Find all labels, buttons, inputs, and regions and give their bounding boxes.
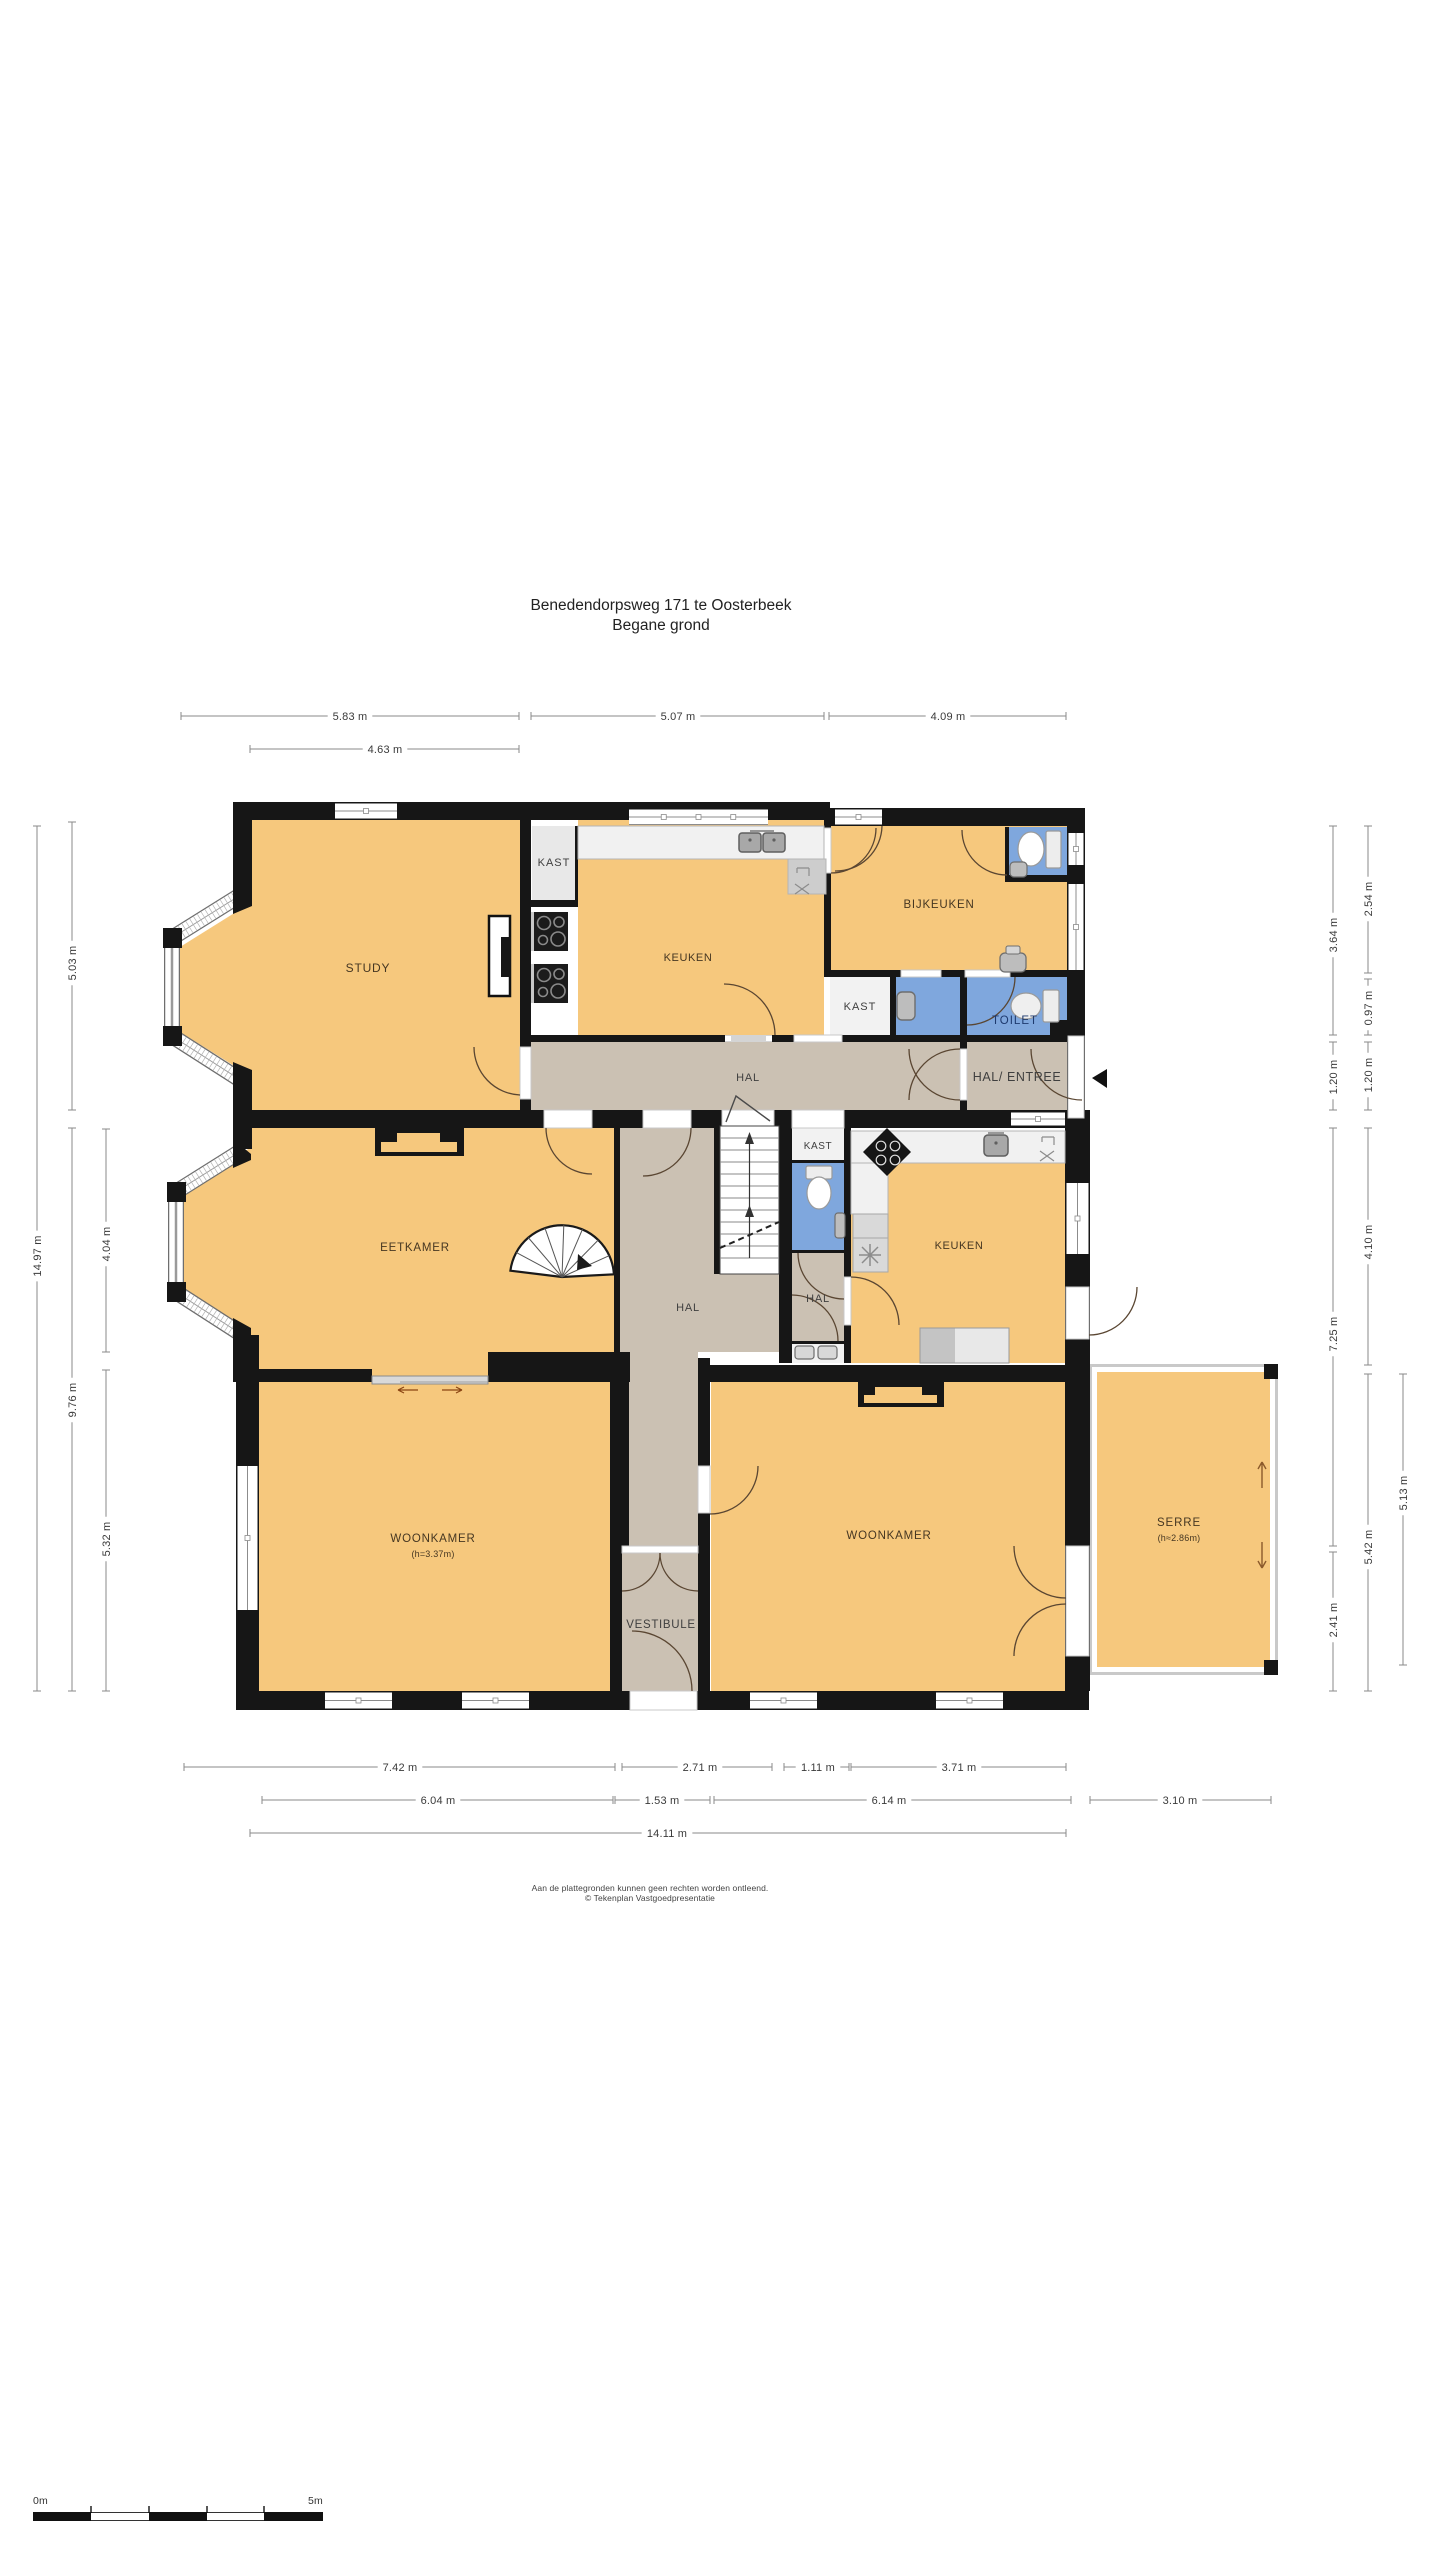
svg-text:5m: 5m bbox=[308, 2495, 323, 2507]
svg-text:VESTIBULE: VESTIBULE bbox=[626, 1619, 696, 1631]
svg-text:WOONKAMER: WOONKAMER bbox=[846, 1530, 931, 1542]
svg-text:14.11 m: 14.11 m bbox=[647, 1828, 687, 1840]
svg-text:Begane grond: Begane grond bbox=[612, 617, 709, 634]
svg-text:EETKAMER: EETKAMER bbox=[380, 1242, 450, 1254]
svg-text:HAL: HAL bbox=[806, 1293, 830, 1305]
svg-text:© Tekenplan Vastgoedpresentati: © Tekenplan Vastgoedpresentatie bbox=[585, 1893, 715, 1903]
svg-text:5.07 m: 5.07 m bbox=[661, 711, 696, 723]
svg-text:7.25 m: 7.25 m bbox=[1328, 1317, 1340, 1352]
svg-text:KEUKEN: KEUKEN bbox=[664, 952, 713, 964]
svg-text:4.63 m: 4.63 m bbox=[368, 744, 403, 756]
svg-text:3.64 m: 3.64 m bbox=[1328, 918, 1340, 953]
svg-text:9.76 m: 9.76 m bbox=[67, 1383, 79, 1418]
svg-text:4.09 m: 4.09 m bbox=[931, 711, 966, 723]
svg-text:3.71 m: 3.71 m bbox=[942, 1762, 977, 1774]
svg-text:2.41 m: 2.41 m bbox=[1328, 1603, 1340, 1638]
svg-text:5.83 m: 5.83 m bbox=[333, 711, 368, 723]
svg-text:5.42 m: 5.42 m bbox=[1363, 1530, 1375, 1565]
svg-text:KAST: KAST bbox=[844, 1001, 877, 1013]
svg-text:KEUKEN: KEUKEN bbox=[935, 1240, 984, 1252]
svg-text:1.11 m: 1.11 m bbox=[801, 1762, 835, 1774]
svg-text:4.04 m: 4.04 m bbox=[101, 1227, 113, 1262]
svg-text:5.32 m: 5.32 m bbox=[101, 1522, 113, 1557]
svg-text:HAL: HAL bbox=[736, 1072, 760, 1084]
svg-text:(h≈2.86m): (h≈2.86m) bbox=[1158, 1533, 1201, 1543]
svg-text:KAST: KAST bbox=[804, 1141, 833, 1152]
svg-text:Aan de plattegronden kunnen ge: Aan de plattegronden kunnen geen rechten… bbox=[532, 1883, 769, 1893]
svg-text:KAST: KAST bbox=[538, 857, 571, 869]
svg-text:WOONKAMER: WOONKAMER bbox=[390, 1533, 475, 1545]
svg-text:6.14 m: 6.14 m bbox=[872, 1795, 907, 1807]
svg-text:7.42 m: 7.42 m bbox=[383, 1762, 418, 1774]
svg-text:Benedendorpsweg 171 te Oosterb: Benedendorpsweg 171 te Oosterbeek bbox=[530, 597, 791, 614]
svg-text:0m: 0m bbox=[33, 2495, 48, 2507]
svg-text:6.04 m: 6.04 m bbox=[421, 1795, 456, 1807]
svg-text:2.54 m: 2.54 m bbox=[1363, 882, 1375, 917]
svg-text:4.10 m: 4.10 m bbox=[1363, 1225, 1375, 1260]
svg-text:2.71 m: 2.71 m bbox=[683, 1762, 718, 1774]
svg-text:3.10 m: 3.10 m bbox=[1163, 1795, 1198, 1807]
svg-text:1.20 m: 1.20 m bbox=[1363, 1058, 1375, 1093]
svg-text:STUDY: STUDY bbox=[346, 961, 391, 975]
svg-text:HAL/ ENTREE: HAL/ ENTREE bbox=[973, 1070, 1062, 1084]
svg-text:BIJKEUKEN: BIJKEUKEN bbox=[903, 899, 974, 911]
svg-text:5.03 m: 5.03 m bbox=[67, 946, 79, 981]
svg-text:(h=3.37m): (h=3.37m) bbox=[411, 1549, 454, 1559]
svg-text:SERRE: SERRE bbox=[1157, 1517, 1201, 1529]
svg-text:14.97 m: 14.97 m bbox=[32, 1235, 44, 1276]
svg-text:0.97 m: 0.97 m bbox=[1363, 991, 1375, 1026]
svg-text:5.13 m: 5.13 m bbox=[1398, 1476, 1410, 1511]
svg-text:HAL: HAL bbox=[676, 1302, 700, 1314]
svg-text:1.53 m: 1.53 m bbox=[645, 1795, 680, 1807]
svg-text:1.20 m: 1.20 m bbox=[1328, 1060, 1340, 1095]
svg-text:TOILET: TOILET bbox=[992, 1015, 1038, 1027]
